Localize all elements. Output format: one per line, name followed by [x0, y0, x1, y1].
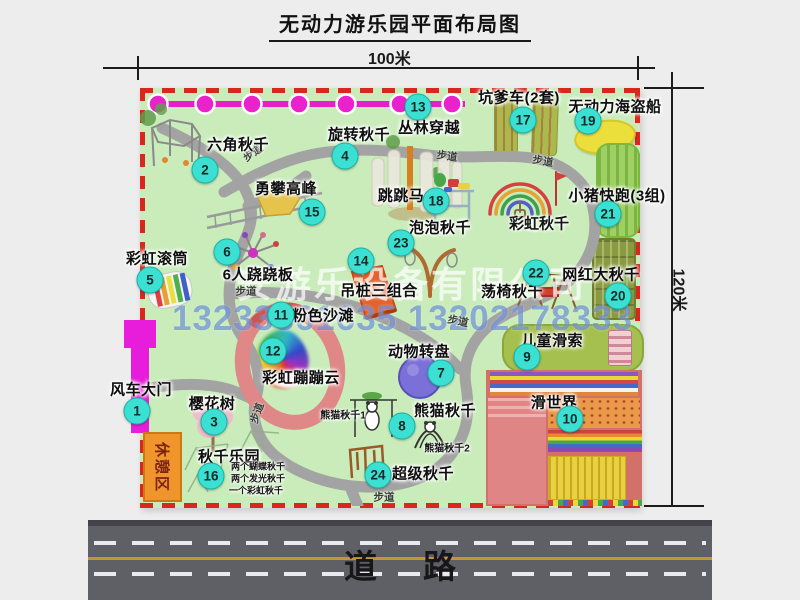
rest-area-label: 休憩区: [152, 441, 173, 492]
jungle-crossing-chain-icon: [149, 95, 466, 114]
panda-swing-1-icon: [350, 392, 397, 437]
park-layout-page: 无动力游乐园平面布局图 100米 120米: [0, 0, 800, 600]
page-title: 无动力游乐园平面布局图: [0, 8, 800, 42]
rest-area-box: 休憩区: [143, 432, 182, 502]
windmill-gate-icon: [124, 320, 156, 433]
animal-carousel-icon: [399, 356, 441, 398]
watermark-phone: 13233861635 13202178333: [172, 299, 633, 339]
page-title-text: 无动力游乐园平面布局图: [269, 8, 531, 42]
panda-swing-2-icon: [415, 421, 445, 448]
super-swing-icon: [350, 446, 384, 478]
rainbow-arch-swing-icon: [490, 172, 567, 217]
